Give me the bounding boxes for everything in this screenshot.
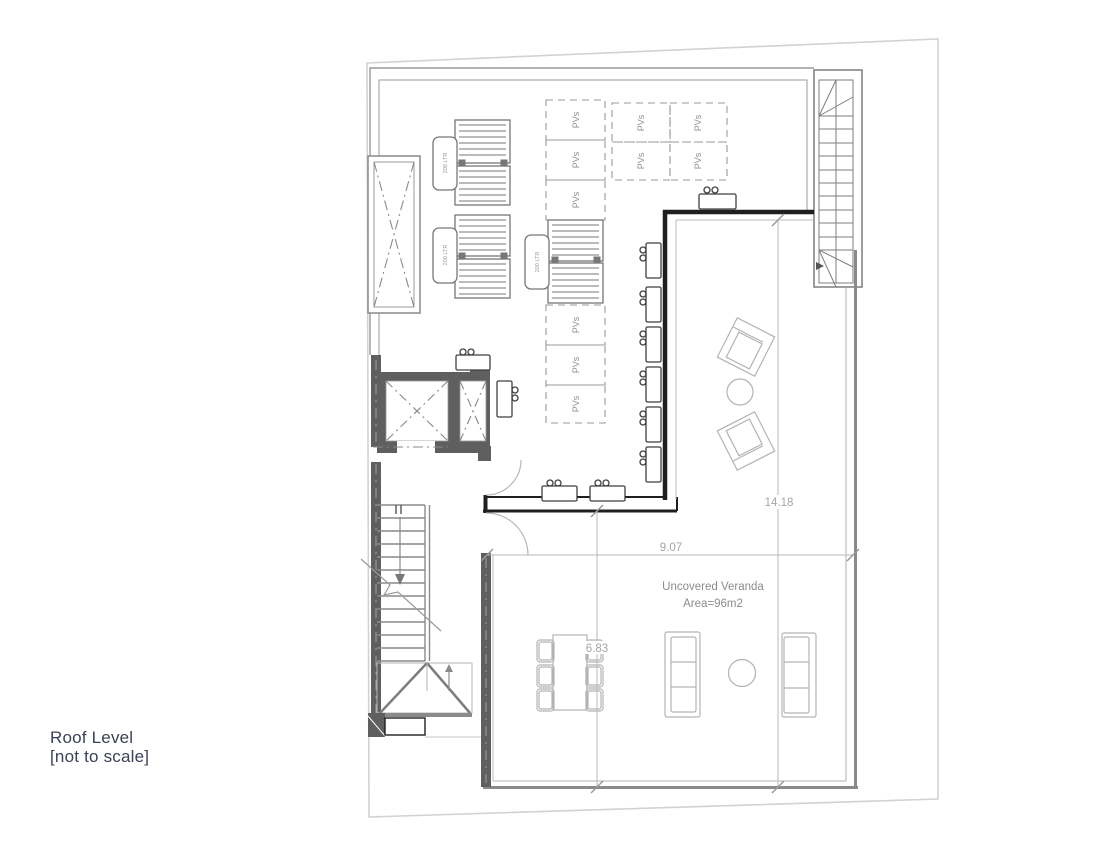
doors [486, 460, 528, 555]
ac-unit [699, 187, 736, 209]
solar-collectors [433, 120, 603, 303]
door-arc-corridor [486, 460, 521, 495]
sheet-title-line2: [not to scale] [50, 747, 149, 766]
dimensions: 14.18 9.07 6.83 [481, 214, 859, 793]
veranda-label: Uncovered Veranda Area=96m2 [662, 581, 764, 610]
sofa [782, 633, 816, 717]
armchair [717, 412, 774, 470]
ac-unit [456, 349, 490, 370]
skylight-shaft [368, 156, 420, 313]
svg-text:PVs: PVs [636, 114, 646, 131]
sofa [665, 632, 700, 717]
dim-width-label: 9.07 [660, 542, 682, 554]
ac-unit [640, 327, 661, 362]
floor-plan-canvas: PVs PVs PVs PVs PVs PVs PVs PVs PVs PVs [0, 0, 1100, 847]
dining-table [553, 635, 587, 710]
svg-text:PVs: PVs [571, 395, 581, 412]
armchair [717, 318, 774, 376]
svg-text:200 LTR: 200 LTR [535, 252, 541, 273]
svg-text:PVs: PVs [693, 114, 703, 131]
pv-labels: PVs PVs PVs PVs PVs PVs PVs PVs PVs PVs [571, 111, 703, 412]
sheet-title-line1: Roof Level [50, 728, 149, 747]
svg-text:Area=96m2: Area=96m2 [683, 598, 743, 610]
ac-unit [590, 480, 625, 501]
svg-text:200 LTR: 200 LTR [443, 245, 449, 266]
svg-text:PVs: PVs [571, 111, 581, 128]
dim-depth-label: 6.83 [586, 643, 608, 655]
elevator-core [373, 366, 491, 461]
svg-text:PVs: PVs [571, 151, 581, 168]
lounge-armchairs [717, 318, 774, 470]
svg-text:PVs: PVs [636, 152, 646, 169]
svg-text:PVs: PVs [571, 316, 581, 333]
dim-height-label: 14.18 [765, 497, 794, 509]
svg-text:200 LTR: 200 LTR [443, 153, 449, 174]
ac-unit [640, 447, 661, 482]
roof-level-plan-sheet: PVs PVs PVs PVs PVs PVs PVs PVs PVs PVs [0, 0, 1100, 847]
sheet-title: Roof Level [not to scale] [50, 728, 149, 766]
ac-unit [497, 381, 518, 417]
svg-text:PVs: PVs [693, 152, 703, 169]
round-table [729, 660, 756, 687]
svg-text:PVs: PVs [571, 191, 581, 208]
svg-text:Uncovered Veranda: Uncovered Veranda [662, 581, 764, 593]
ac-unit [640, 243, 661, 278]
round-table [727, 379, 753, 405]
svg-text:PVs: PVs [571, 356, 581, 373]
ac-unit [542, 480, 577, 501]
ac-unit [640, 287, 661, 322]
ac-unit [640, 407, 661, 442]
ac-unit [640, 367, 661, 402]
veranda-furniture [537, 632, 816, 717]
